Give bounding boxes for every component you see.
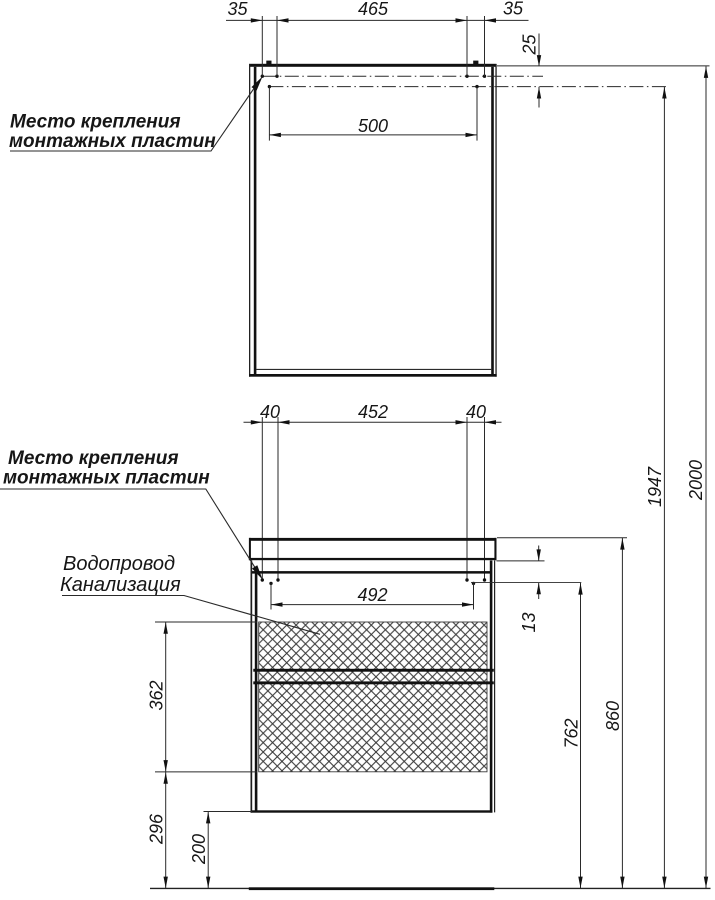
svg-text:762: 762 [561,718,581,748]
svg-text:монтажных пластин: монтажных пластин [9,131,216,152]
svg-text:296: 296 [146,813,166,845]
svg-text:Место крепления: Место крепления [10,112,181,133]
svg-text:40: 40 [260,402,280,422]
svg-text:25: 25 [520,34,540,56]
svg-text:2000: 2000 [686,460,706,501]
svg-text:35: 35 [503,0,524,18]
svg-text:Место крепления: Место крепления [8,448,179,469]
svg-text:452: 452 [358,402,388,422]
svg-text:200: 200 [189,834,209,865]
svg-text:13: 13 [519,612,539,632]
svg-text:492: 492 [357,585,387,605]
svg-text:860: 860 [603,701,623,731]
svg-text:монтажных пластин: монтажных пластин [3,468,210,489]
svg-text:Водопровод: Водопровод [63,553,175,575]
svg-text:362: 362 [146,680,166,710]
svg-text:35: 35 [227,0,248,19]
svg-text:40: 40 [466,402,486,422]
svg-text:500: 500 [358,116,388,136]
svg-text:1947: 1947 [645,466,665,507]
svg-text:Канализация: Канализация [60,574,181,596]
svg-text:465: 465 [358,0,389,19]
